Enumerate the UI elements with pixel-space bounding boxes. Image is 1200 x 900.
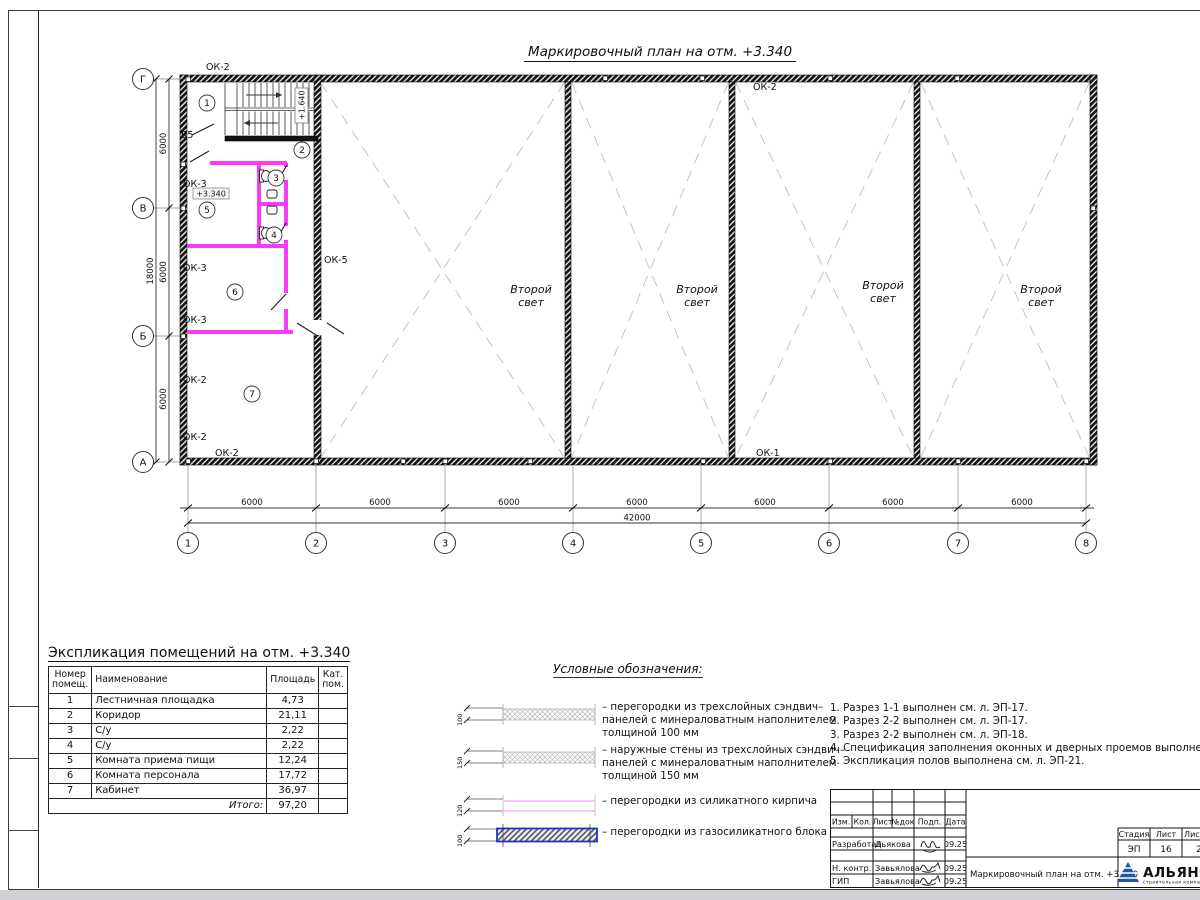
svg-text:Завьялова: Завьялова [875,876,920,886]
svg-text:ОК-3: ОК-3 [183,263,207,274]
col-header-name: Наименование [92,667,267,694]
explication-table: Номер помещ. Наименование Площадь Кат. п… [48,666,348,814]
svg-text:ОК-1: ОК-1 [756,448,780,459]
opening-tags: ОК-2 ОК-2 ОК-3 ОК-3 ОК-3 ОК-2 ОК-2 ОК-2 … [180,62,780,459]
svg-text:6000: 6000 [882,498,904,508]
svg-text:16: 16 [1160,845,1172,855]
svg-text:ОК-2: ОК-2 [215,448,239,459]
svg-text:7: 7 [249,390,255,400]
walls [180,75,1097,465]
doc-title: Маркировочный план на отм. +3.340 [970,870,1138,880]
svg-text:09.25: 09.25 [944,876,967,886]
svg-text:Г: Г [140,75,146,86]
svg-text:Стадия: Стадия [1119,830,1150,839]
svg-text:4: 4 [570,539,576,550]
elevation-mark: +3.340 [193,188,229,199]
table-row: 6Комната персонала 17,72 [49,769,348,784]
logo-name: АЛЬЯНС [1143,865,1200,881]
signature-rows: Разработал Дьякова 09.25 Н. контр. Завья… [832,839,967,886]
svg-text:4: 4 [271,231,277,241]
svg-text:Подп.: Подп. [918,818,942,827]
svg-text:Изм.: Изм. [832,818,850,827]
svg-text:150: 150 [456,757,464,769]
col-header-cat: Кат. пом. [319,667,348,694]
svg-text:1: 1 [185,539,191,550]
title-block: Изм. Кол. Лист №док Подп. Дата Разработа… [830,789,1200,888]
svg-text:2: 2 [313,539,319,550]
svg-text:Второй: Второй [676,283,718,296]
svg-text:Б: Б [140,332,147,343]
svg-text:Н. контр.: Н. контр. [832,863,871,873]
svg-text:120: 120 [456,805,464,817]
stage-block: Стадия Лист Листов ЭП 16 2 [1119,830,1200,855]
margin-tick [8,830,38,831]
note-line: 5. Экспликация полов выполнена см. л. ЭП… [830,755,1180,768]
svg-text:ОК-2: ОК-2 [206,62,230,73]
signature-scribbles [920,841,940,885]
floor-plan: +1.640 [0,0,1200,620]
svg-text:6000: 6000 [754,498,776,508]
svg-text:6000: 6000 [626,498,648,508]
svg-text:2: 2 [299,146,305,156]
elevation-stair-label: +1.640 [298,90,307,120]
svg-text:09.25: 09.25 [944,863,967,873]
svg-text:5: 5 [204,206,210,216]
svg-text:2: 2 [1196,845,1200,855]
drawing-sheet: Маркировочный план на отм. +3.340 [0,0,1200,900]
svg-text:1: 1 [204,99,210,109]
svg-text:ЭП: ЭП [1127,845,1140,855]
table-row: 2Коридор 21,11 [49,709,348,724]
svg-text:свет: свет [1028,296,1054,309]
table-row: 1Лестничная площадка 4,73 [49,694,348,709]
svg-text:09.25: 09.25 [944,839,967,849]
svg-text:свет: свет [870,292,896,305]
svg-text:Второй: Второй [510,283,552,296]
svg-text:ОК-5: ОК-5 [324,255,348,266]
col-header-area: Площадь [267,667,319,694]
svg-text:ОК-2: ОК-2 [183,432,207,443]
legend-title: Условные обозначения: [553,662,703,678]
svg-text:А: А [140,458,147,469]
screen-bottom-strip [0,890,1200,900]
total-label: Итого: [49,799,267,814]
notes: 1. Разрез 1-1 выполнен см. л. ЭП-17. 2. … [830,702,1180,768]
svg-text:18000: 18000 [146,257,156,284]
svg-text:100: 100 [456,835,464,847]
svg-text:свет: свет [518,296,544,309]
svg-text:6: 6 [232,288,238,298]
svg-text:Второй: Второй [862,279,904,292]
svg-text:6000: 6000 [1011,498,1033,508]
note-line: 1. Разрез 1-1 выполнен см. л. ЭП-17. [830,702,1180,715]
svg-text:6000: 6000 [159,261,169,283]
axis-bubbles-bottom: 1 2 3 4 5 6 7 8 [178,533,1097,554]
stair-elevation-mark: +1.640 [295,88,308,123]
legend: Условные обозначения: 100 – перегородки … [455,656,865,886]
table-row: 5Комната приема пищи 12,24 [49,754,348,769]
door-opening [313,320,322,335]
legend-symbol-wall-150: 150 [455,742,600,772]
svg-text:5: 5 [698,539,704,550]
svg-text:свет: свет [684,296,710,309]
total-value: 97,20 [267,799,319,814]
note-line: 4. Спецификация заполнения оконных и две… [830,742,1180,755]
svg-text:№док: №док [892,818,915,827]
svg-text:ОК-2: ОК-2 [753,82,777,93]
svg-text:6000: 6000 [241,498,263,508]
legend-item-text: – перегородки из газосиликатного блока [602,826,857,839]
void-cross-marks [321,83,1089,457]
margin-tick [8,706,38,707]
svg-text:6000: 6000 [369,498,391,508]
svg-text:ОК-3: ОК-3 [183,315,207,326]
svg-text:ОК-2: ОК-2 [183,375,207,386]
svg-text:6: 6 [826,539,832,550]
table-row: 3С/у 2,22 [49,724,348,739]
svg-text:6000: 6000 [159,133,169,155]
svg-text:Д5: Д5 [180,130,193,141]
svg-text:Листов: Листов [1184,830,1200,839]
svg-text:ГИП: ГИП [832,876,849,886]
svg-text:В: В [140,204,147,215]
table-row: 4С/у 2,22 [49,739,348,754]
second-light-labels: Второйсвет Второйсвет Второйсвет Второйс… [510,279,1062,309]
company-logo: АЛЬЯНС строительная компания [1117,862,1200,886]
legend-symbol-partition-100: 100 [455,699,600,729]
note-line: 2. Разрез 2-2 выполнен см. л. ЭП-17. [830,715,1180,728]
note-line: 3. Разрез 2-2 выполнен см. л. ЭП-18. [830,729,1180,742]
svg-text:42000: 42000 [623,514,650,524]
svg-text:Кол.: Кол. [854,818,872,827]
legend-symbol-gas-silicate: 100 [455,820,600,850]
svg-text:3: 3 [442,539,448,550]
room-explication: Экспликация помещений на отм. +3.340 Ном… [48,642,348,814]
legend-item-text: – наружные стены из трехслойных сэндвич–… [602,744,857,784]
logo-tagline: строительная компания [1143,881,1200,886]
svg-text:8: 8 [1083,539,1089,550]
svg-text:7: 7 [955,539,961,550]
legend-item-text: – перегородки из силикатного кирпича [602,795,857,808]
margin-tick [8,758,38,759]
col-header-num: Номер помещ. [49,667,92,694]
svg-text:Завьялова: Завьялова [875,863,920,873]
svg-text:+3.340: +3.340 [196,190,226,199]
svg-text:100: 100 [456,714,464,726]
legend-item-text: – перегородки из трехслойных сэндвич–пан… [602,701,857,741]
svg-text:Лист: Лист [873,818,893,827]
dimension-left: 6000 6000 6000 18000 [146,76,173,466]
svg-text:Лист: Лист [1156,830,1177,839]
svg-text:3: 3 [273,174,279,184]
total-row: Итого: 97,20 [49,799,348,814]
table-row: 7Кабинет 36,97 [49,784,348,799]
dimension-bottom: 6000 6000 6000 6000 6000 6000 6000 42000 [180,498,1094,527]
svg-text:Второй: Второй [1020,283,1062,296]
svg-text:6000: 6000 [498,498,520,508]
svg-text:Дьякова: Дьякова [875,839,911,849]
svg-text:Дата: Дата [945,818,965,827]
svg-text:6000: 6000 [159,388,169,410]
legend-symbol-brick-partition: 120 [455,790,600,820]
explication-title: Экспликация помещений на отм. +3.340 [48,645,350,662]
